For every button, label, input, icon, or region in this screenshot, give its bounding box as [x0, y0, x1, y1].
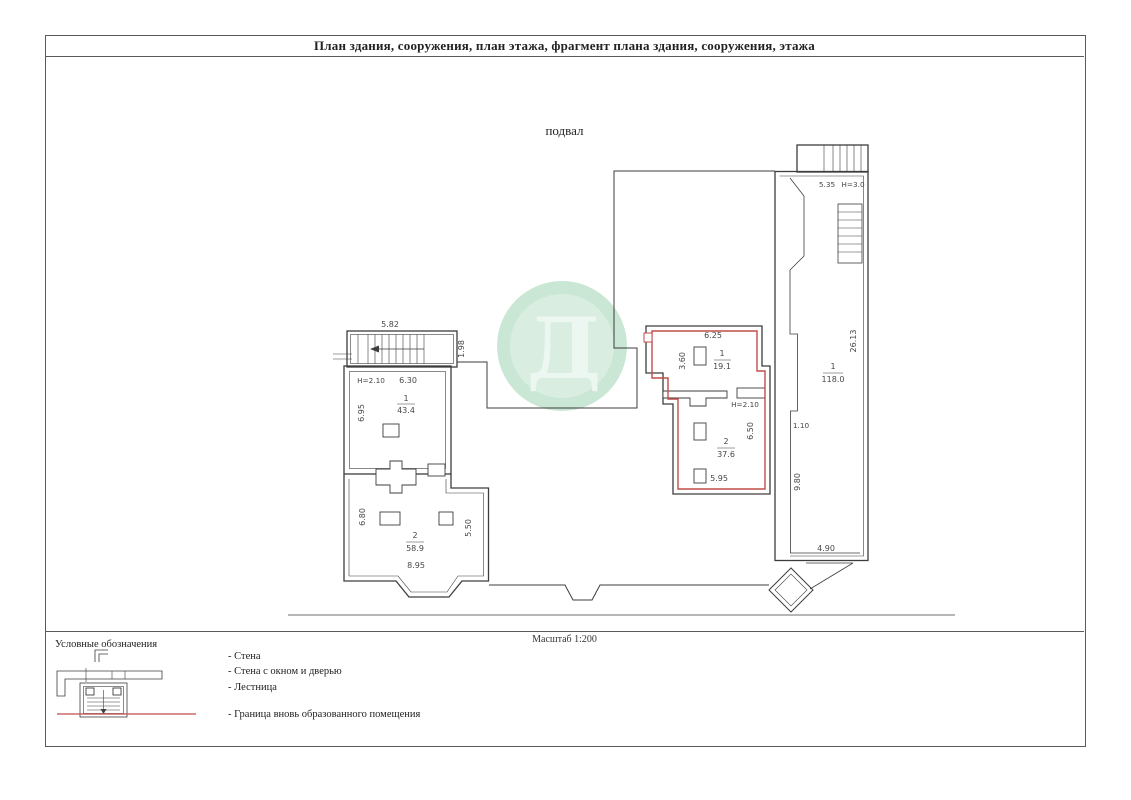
pillar — [694, 423, 706, 440]
pillar — [383, 424, 399, 437]
room-area: 43.4 — [397, 406, 415, 415]
legend-item-stairs: - Лестница — [228, 682, 277, 693]
room-number: 2 — [412, 531, 417, 540]
room-number: 1 — [719, 349, 724, 358]
dim-left-stairs-width: 5.82 — [381, 320, 399, 329]
new-premises-boundary — [652, 331, 765, 489]
window-tick — [333, 354, 352, 359]
floor-plan-drawing: Д — [0, 0, 1131, 800]
dim-right-width-bottom: 4.90 — [817, 544, 835, 553]
dim-middle-depth-right: 6.50 — [746, 422, 755, 440]
pillar — [380, 512, 400, 525]
legend-item-wall-window-door: - Стена с окном и дверью — [228, 666, 342, 677]
dim-left-depth-top: 6.95 — [357, 404, 366, 422]
legend-item-boundary: - Граница вновь образованного помещения — [228, 709, 420, 720]
dim-left-width-bottom: 8.95 — [407, 561, 425, 570]
right-room-wall — [790, 178, 860, 553]
dim-right-offset: 1.10 — [793, 421, 810, 430]
right-room1-label: 1 118.0 — [822, 362, 845, 384]
wall-niche — [428, 464, 445, 476]
watermark-letter: Д — [527, 299, 602, 398]
room-number: 1 — [403, 394, 408, 403]
legend-header: Условные обозначения — [55, 639, 157, 650]
middle-height-label: Н=2.10 — [731, 400, 759, 409]
dim-middle-width-top: 6.25 — [704, 331, 722, 340]
dim-middle-width-bottom: 5.95 — [710, 474, 728, 483]
room-number: 1 — [830, 362, 835, 371]
right-stairs-block — [797, 145, 868, 172]
dim-middle-entry: 3.60 — [678, 352, 687, 370]
room-area: 37.6 — [717, 450, 735, 459]
right-walls-outer — [775, 172, 868, 561]
legend-item-wall: - Стена — [228, 651, 261, 662]
interior-ladder — [838, 204, 862, 263]
right-building: 5.35 Н=3.0 26.13 1 118.0 1.10 9.80 4.90 — [769, 145, 868, 612]
stairs-symbol — [80, 683, 127, 717]
middle-partition-right — [737, 388, 765, 398]
pillar — [439, 512, 453, 525]
yard-boundary-line — [489, 585, 769, 600]
dim-left-depth-right: 5.50 — [464, 519, 473, 537]
middle-walls-outer — [646, 326, 770, 494]
dim-left-stairs-depth: 1.98 — [457, 340, 466, 358]
left-room1-label: 1 43.4 — [397, 394, 415, 415]
room-area: 118.0 — [822, 375, 845, 384]
wall-symbol — [95, 650, 108, 662]
wall-window-door-symbol — [57, 668, 162, 696]
room-area: 58.9 — [406, 544, 424, 553]
middle-room1-label: 1 19.1 — [713, 349, 731, 371]
dim-left-width-top: 6.30 — [399, 376, 417, 385]
pillar — [694, 469, 706, 483]
document-page: План здания, сооружения, план этажа, фра… — [0, 0, 1131, 800]
watermark-seal: Д — [497, 281, 627, 411]
dim-right-depth-left: 9.80 — [793, 473, 802, 491]
dim-left-depth-bottom: 6.80 — [358, 508, 367, 526]
left-stairs-direction-arrow — [370, 346, 424, 353]
legend-symbols — [57, 650, 196, 717]
room-area: 19.1 — [713, 362, 731, 371]
parcel-outline — [288, 171, 955, 615]
middle-building: 6.25 3.60 1 19.1 Н=2.10 6.50 2 37.6 5.95 — [644, 326, 770, 494]
right-stairs-treads — [824, 145, 861, 172]
left-height-label: Н=2.10 — [357, 376, 385, 385]
right-walls-inner — [780, 176, 864, 556]
cross-pillar — [376, 461, 416, 493]
dim-right-depth-right: 26.13 — [849, 330, 858, 353]
dim-right-width-top: 5.35 — [819, 180, 835, 189]
pillar — [694, 347, 706, 365]
bay-window-diamond — [769, 563, 853, 612]
left-room2-label: 2 58.9 — [406, 531, 424, 553]
room-number: 2 — [723, 437, 728, 446]
door-opening — [644, 333, 652, 342]
right-height-label: Н=3.0 — [841, 180, 865, 189]
middle-room2-label: 2 37.6 — [717, 437, 735, 459]
